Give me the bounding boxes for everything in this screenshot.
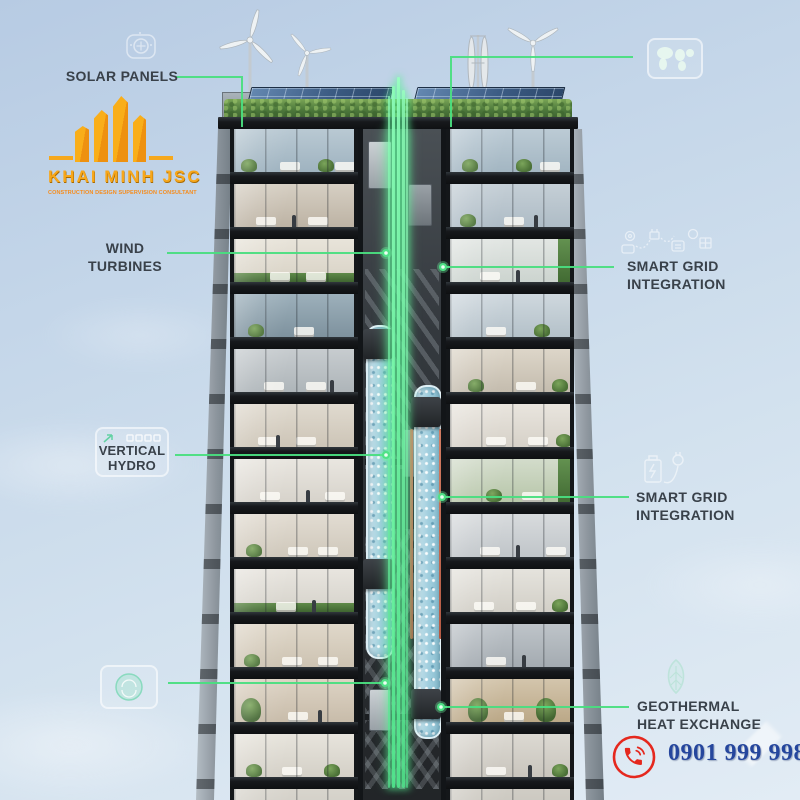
hydro-line2: HYDRO xyxy=(108,459,156,474)
callout-dot xyxy=(436,491,448,503)
label-wind-turbines: WIND TURBINES xyxy=(65,240,185,276)
callout-dot xyxy=(435,701,447,713)
callout-dot xyxy=(437,261,449,273)
contact-phone: 0901 999 998 xyxy=(608,731,798,783)
label-smart-grid-top: SMART GRID INTEGRATION xyxy=(627,258,726,294)
poster-canvas: SOLAR PANELS KHAI MINH JSC CONSTRUCTION … xyxy=(0,0,800,800)
label-smart-grid-mid: SMART GRID INTEGRATION xyxy=(636,489,735,525)
leaf-icon xyxy=(660,658,692,696)
callout-dot xyxy=(379,677,391,689)
world-map-badge xyxy=(647,38,703,79)
solar-panels-text: SOLAR PANELS xyxy=(66,68,178,84)
label-vertical-hydro-box: VERTICAL HYDRO xyxy=(95,427,169,477)
callout-dots xyxy=(379,247,449,713)
callout-line-map xyxy=(451,57,633,127)
wind-line1: WIND xyxy=(65,240,185,258)
geothermal-line1: GEOTHERMAL xyxy=(637,698,761,716)
logo-buildings-icon xyxy=(75,95,147,162)
smart-grid-icons xyxy=(620,226,716,256)
world-map-icon xyxy=(649,40,701,77)
callout-dot xyxy=(380,247,392,259)
smart-grid-top-line2: INTEGRATION xyxy=(627,276,726,294)
company-logo: KHAI MINH JSC CONSTRUCTION DESIGN SUPERV… xyxy=(48,95,174,196)
eco-badge xyxy=(100,665,158,709)
company-tagline: CONSTRUCTION DESIGN SUPERVISION CONSULTA… xyxy=(48,190,174,196)
phone-icon xyxy=(608,731,660,783)
logo-dash-left xyxy=(49,156,73,160)
logo-dash-right xyxy=(149,156,173,160)
hydro-icons xyxy=(101,432,163,444)
wind-line2: TURBINES xyxy=(65,258,185,276)
smart-grid-top-line1: SMART GRID xyxy=(627,258,726,276)
hydro-line1: VERTICAL xyxy=(99,444,166,459)
eco-badge-icon xyxy=(102,667,156,707)
sun-panel-icon xyxy=(122,29,162,65)
phone-number: 0901 999 998 xyxy=(668,740,800,767)
callout-dot xyxy=(380,449,392,461)
smart-grid-mid-line2: INTEGRATION xyxy=(636,507,735,525)
company-name: KHAI MINH JSC xyxy=(48,167,174,187)
label-solar-panels: SOLAR PANELS xyxy=(52,68,192,86)
smart-grid-mid-line1: SMART GRID xyxy=(636,489,735,507)
label-geothermal: GEOTHERMAL HEAT EXCHANGE xyxy=(637,698,761,734)
battery-plug-icon xyxy=(642,450,694,490)
